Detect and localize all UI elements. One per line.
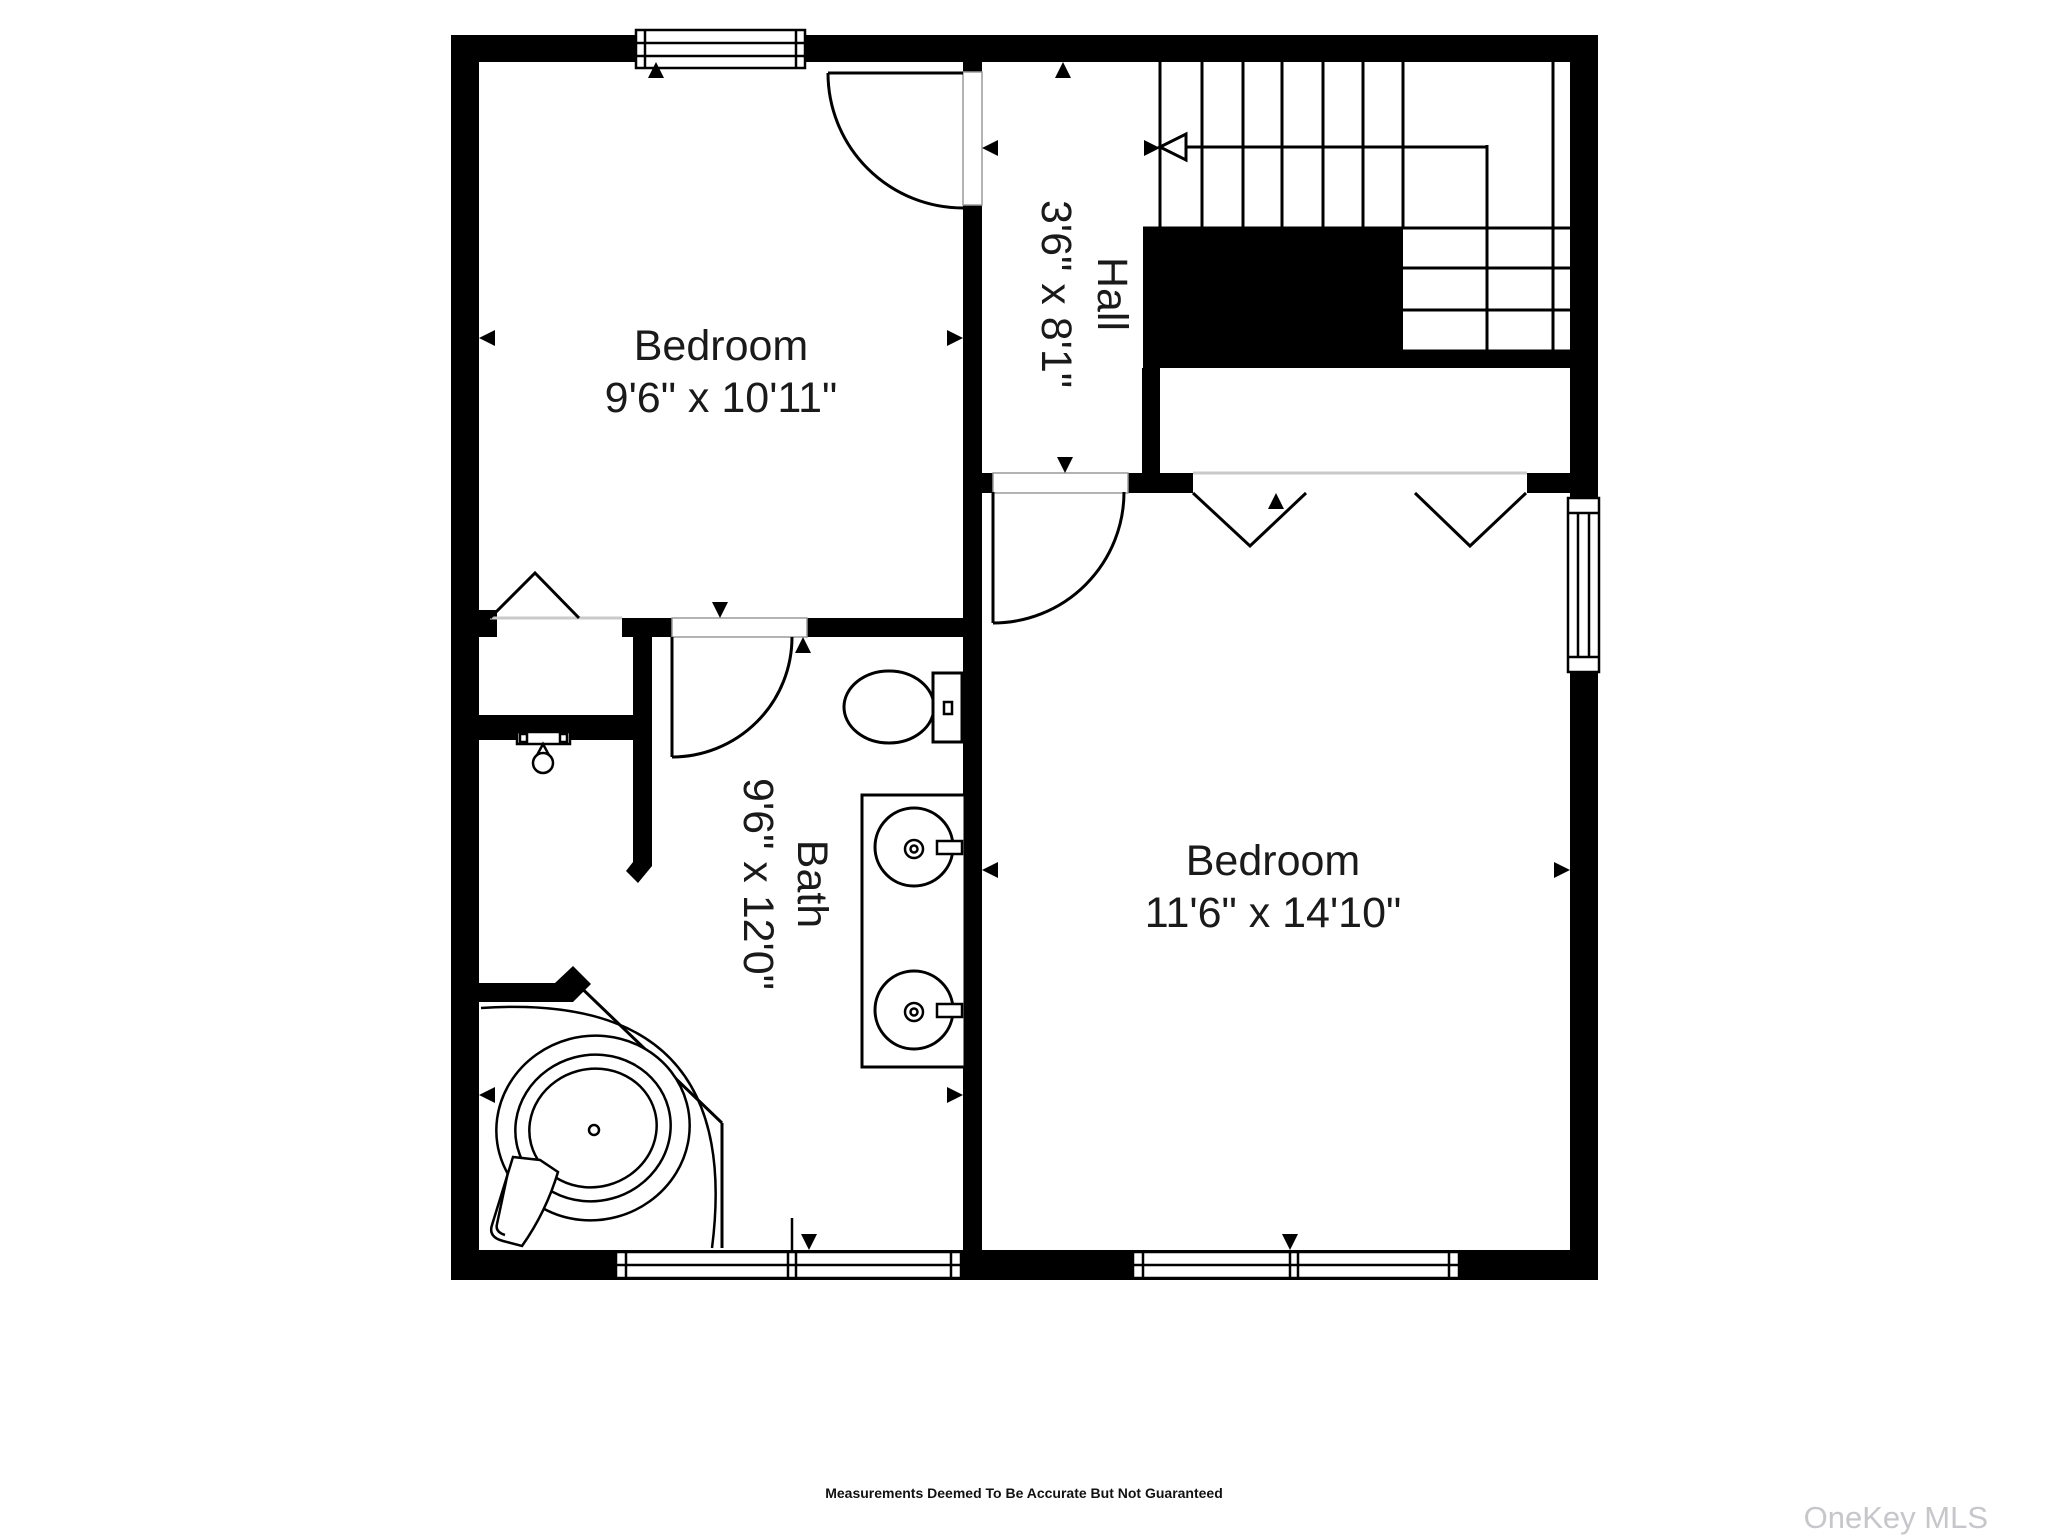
hall-name: Hall xyxy=(1088,257,1136,331)
window-right-bedroom xyxy=(1568,498,1599,672)
tub-drain xyxy=(589,1125,599,1135)
toilet-flush-button xyxy=(944,702,952,714)
toilet xyxy=(844,671,962,743)
stair-wall-mass xyxy=(1143,228,1403,368)
bedroom-right-dimensions: 11'6" x 14'10" xyxy=(1145,889,1402,937)
bedroom-top-left-name: Bedroom xyxy=(634,322,808,370)
bath-dimensions: 9'6" x 12'0" xyxy=(734,778,782,990)
stair-bottom-wall xyxy=(1403,351,1570,368)
double-sink-vanity xyxy=(862,795,965,1067)
bedroom-right-name: Bedroom xyxy=(1186,837,1360,885)
hall-dimensions: 3'6" x 8'1" xyxy=(1032,200,1080,388)
disclaimer-text: Measurements Deemed To Be Accurate But N… xyxy=(825,1485,1223,1501)
floor-plan-canvas: Bedroom 9'6" x 10'11" Hall 3'6" x 8'1" B… xyxy=(0,0,2048,1536)
window-top-bedroom xyxy=(636,30,805,68)
watermark: OneKey MLS xyxy=(1804,1500,1988,1535)
bedroom-top-left-dimensions: 9'6" x 10'11" xyxy=(605,374,838,422)
page-background xyxy=(0,0,2048,1536)
bath-name: Bath xyxy=(788,840,836,928)
window-bottom-bedroom xyxy=(1133,1252,1459,1278)
